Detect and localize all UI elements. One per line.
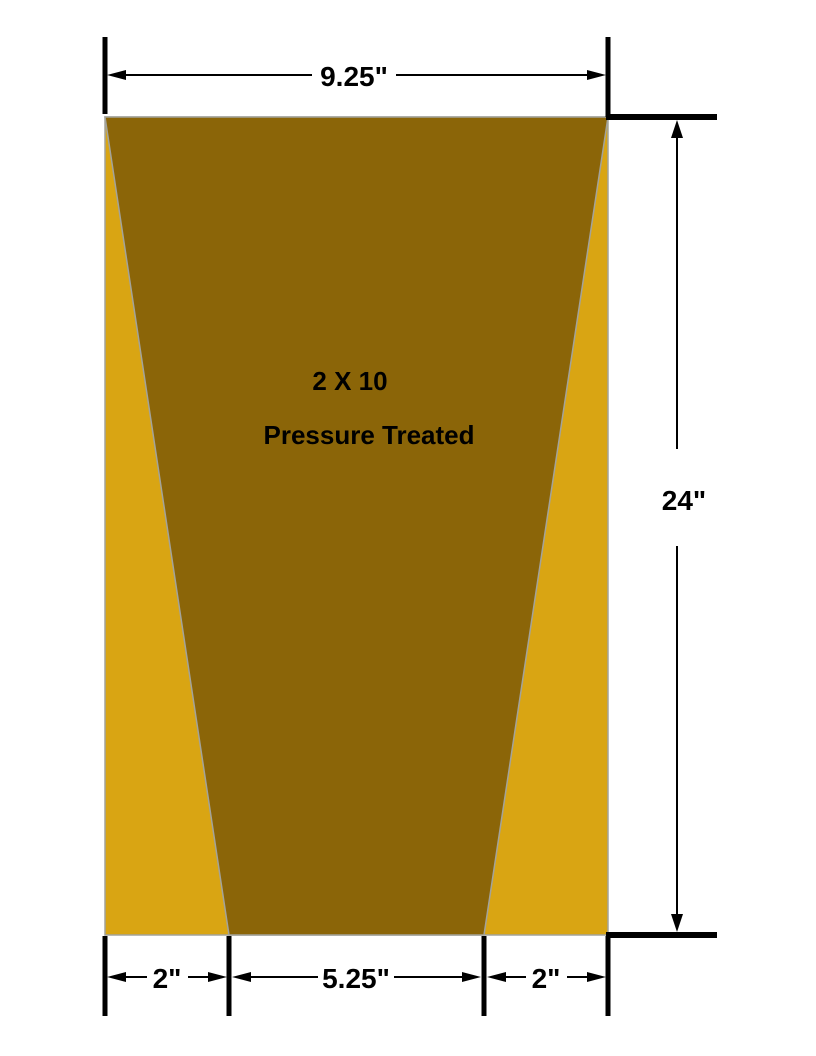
lumber-dimension-diagram-page: 9.25" 24" 2" 5.25" 2" [0, 0, 816, 1056]
dim-label-bottom-left: 2" [153, 963, 182, 994]
arrowhead-height-down [671, 914, 683, 932]
arrowhead-bottom-right-b [587, 972, 606, 982]
arrowhead-bottom-center-b [462, 972, 481, 982]
wood-size-label: 2 X 10 [312, 366, 387, 396]
wood-treatment-label: Pressure Treated [263, 420, 474, 450]
lumber-dimension-diagram: 9.25" 24" 2" 5.25" 2" [0, 0, 816, 1056]
arrowhead-bottom-left-b [208, 972, 227, 982]
dim-label-top-width: 9.25" [320, 61, 388, 92]
dim-label-bottom-center: 5.25" [322, 963, 390, 994]
arrowhead-top-right [587, 70, 606, 80]
dim-label-bottom-right: 2" [532, 963, 561, 994]
dim-label-height: 24" [662, 485, 706, 516]
